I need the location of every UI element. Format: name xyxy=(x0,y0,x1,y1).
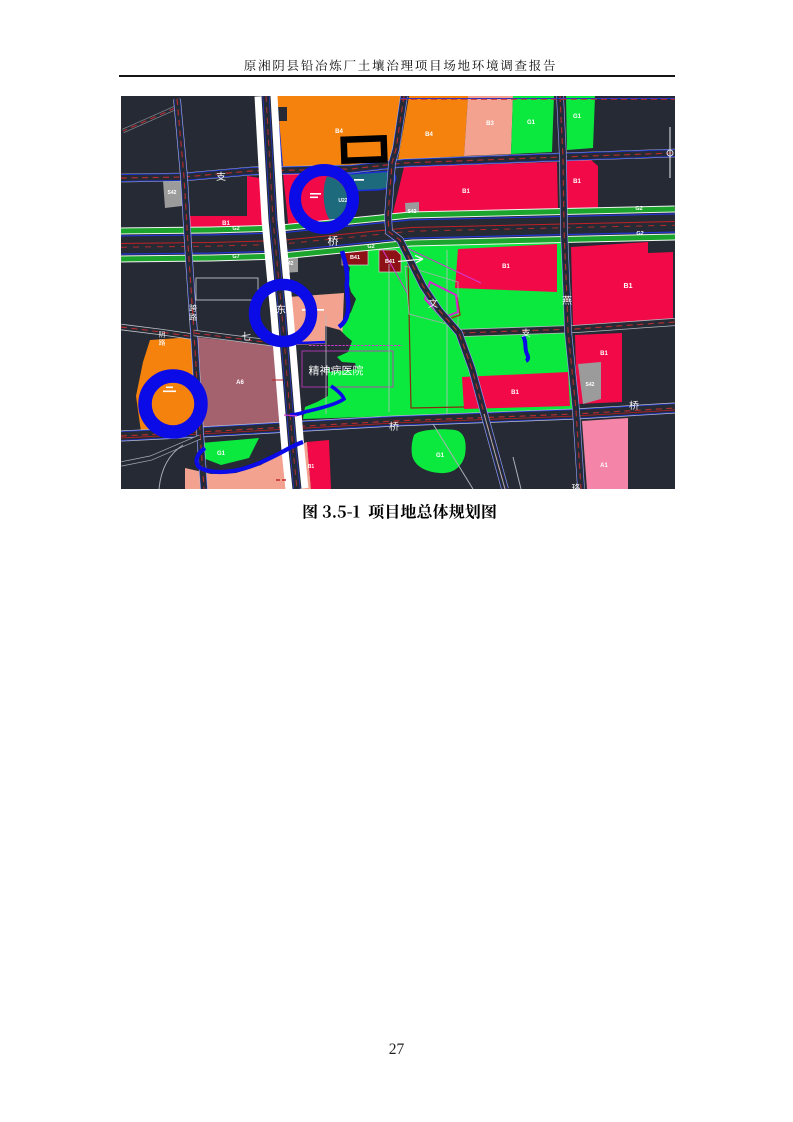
svg-text:B1: B1 xyxy=(462,189,470,195)
svg-text:S42: S42 xyxy=(285,261,294,267)
svg-text:B1: B1 xyxy=(624,283,633,290)
svg-text:B3: B3 xyxy=(486,121,494,127)
svg-text:U22: U22 xyxy=(338,198,347,204)
svg-text:G7: G7 xyxy=(232,254,239,260)
svg-text:S42: S42 xyxy=(586,382,595,388)
svg-text:B1: B1 xyxy=(222,221,230,227)
svg-text:G2: G2 xyxy=(636,231,643,237)
svg-text:B41: B41 xyxy=(385,259,395,265)
svg-text:A1: A1 xyxy=(600,463,608,469)
svg-text:B1: B1 xyxy=(600,351,608,357)
svg-text:G1: G1 xyxy=(573,114,582,120)
svg-text:G1: G1 xyxy=(436,453,445,459)
svg-text:G1: G1 xyxy=(527,120,536,126)
svg-text:S42: S42 xyxy=(408,209,417,215)
svg-text:B1: B1 xyxy=(308,464,315,470)
svg-text:B1: B1 xyxy=(573,179,581,185)
svg-text:G2: G2 xyxy=(367,244,374,250)
svg-text:B1: B1 xyxy=(502,264,510,270)
svg-text:B4: B4 xyxy=(425,132,433,138)
svg-text:G1: G1 xyxy=(217,451,226,457)
svg-text:B41: B41 xyxy=(350,255,360,261)
svg-text:S42: S42 xyxy=(168,190,177,196)
svg-text:B1: B1 xyxy=(511,390,519,396)
svg-text:A6: A6 xyxy=(236,380,244,386)
svg-text:G2: G2 xyxy=(232,226,239,232)
svg-text:B4: B4 xyxy=(335,129,343,135)
svg-text:G2: G2 xyxy=(635,206,642,212)
